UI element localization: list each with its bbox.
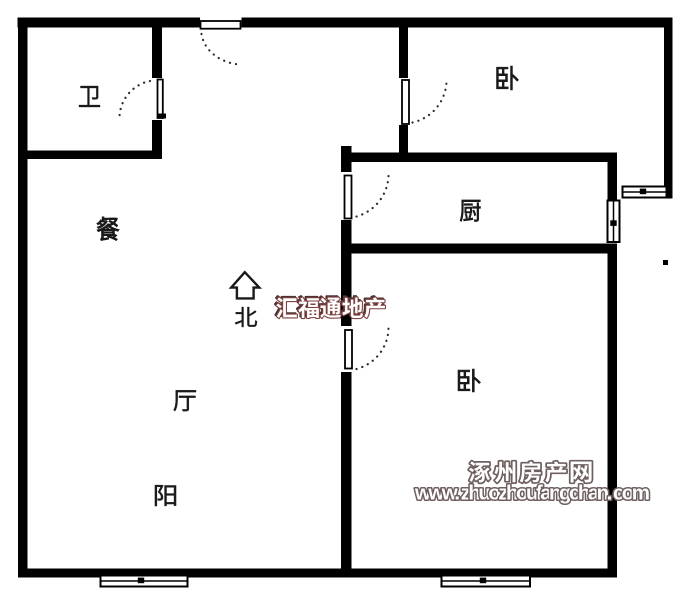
svg-text:www. zhuozhoufangchan. com: www. zhuozhoufangchan. com xyxy=(414,482,650,505)
